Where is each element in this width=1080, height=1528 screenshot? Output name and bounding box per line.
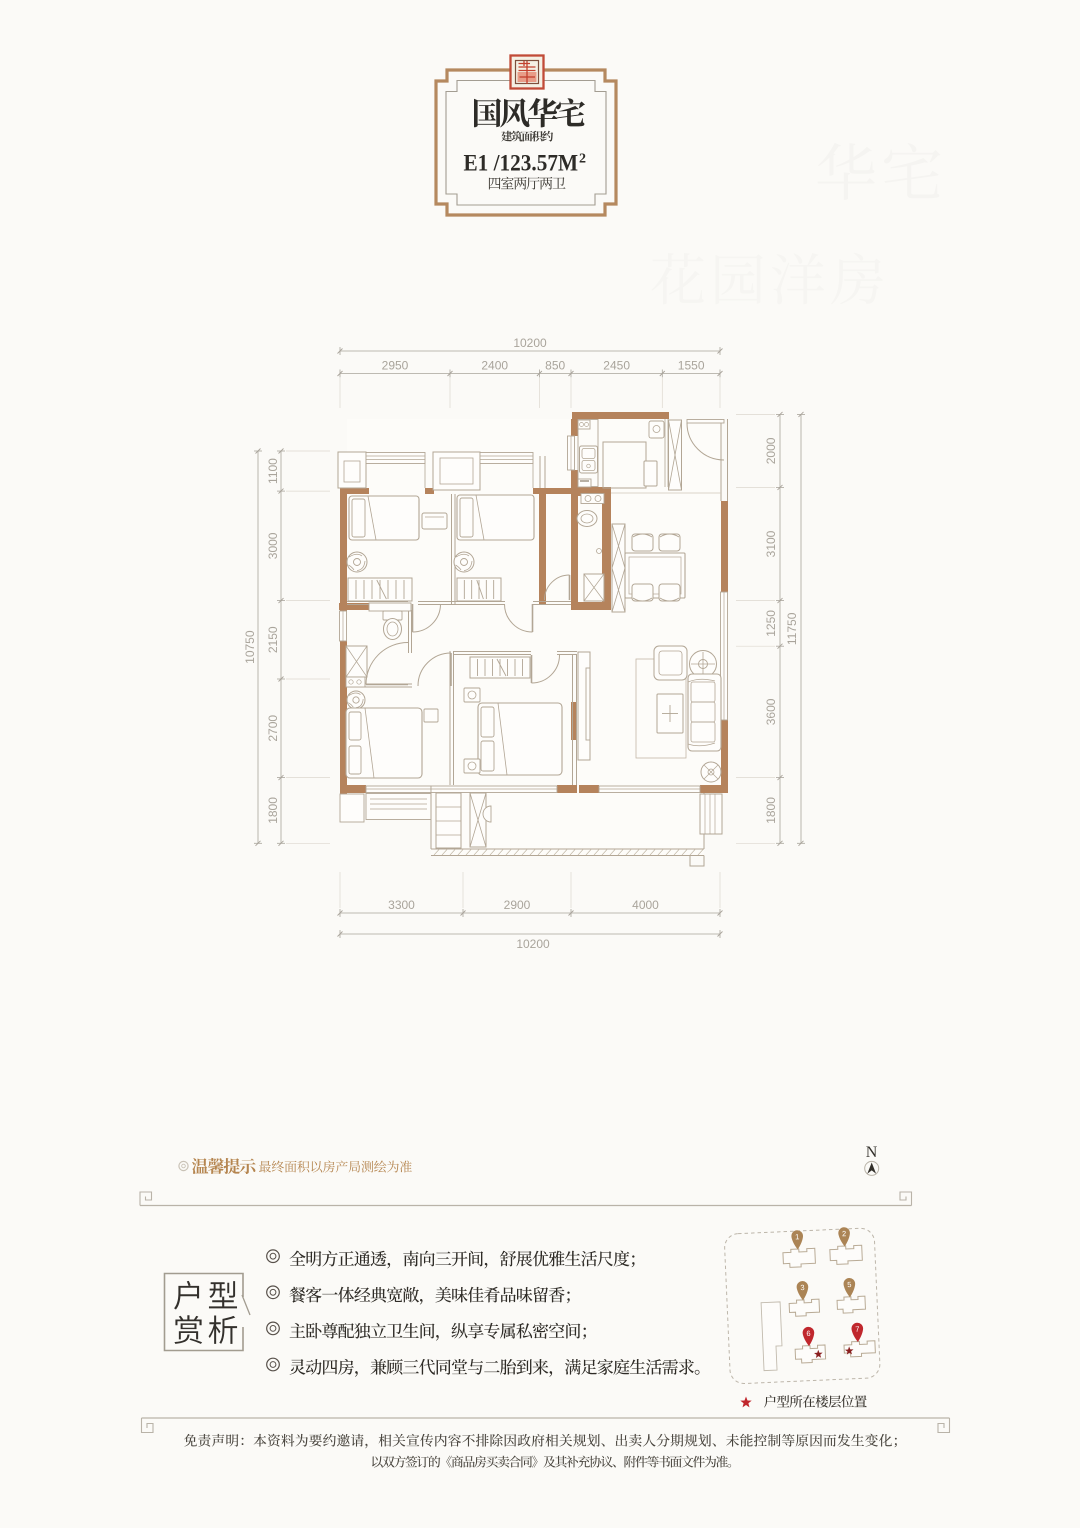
svg-text:3300: 3300 bbox=[388, 898, 415, 912]
svg-text:11750: 11750 bbox=[785, 612, 799, 645]
svg-text:10200: 10200 bbox=[516, 937, 550, 951]
svg-text:1800: 1800 bbox=[266, 797, 280, 824]
svg-text:5: 5 bbox=[847, 1280, 852, 1289]
svg-text:850: 850 bbox=[545, 359, 565, 373]
svg-text:6: 6 bbox=[806, 1329, 811, 1338]
svg-text:1800: 1800 bbox=[764, 797, 778, 824]
svg-text:3600: 3600 bbox=[764, 698, 778, 725]
svg-text:3000: 3000 bbox=[266, 532, 280, 559]
svg-text:4000: 4000 bbox=[632, 898, 659, 912]
svg-text:2000: 2000 bbox=[764, 437, 778, 464]
svg-text:2: 2 bbox=[579, 152, 586, 167]
svg-text:10750: 10750 bbox=[243, 630, 257, 664]
svg-text:N: N bbox=[866, 1144, 878, 1161]
svg-text:1550: 1550 bbox=[678, 359, 705, 373]
svg-text:10200: 10200 bbox=[513, 336, 547, 350]
svg-text:2950: 2950 bbox=[382, 359, 409, 373]
svg-text:2700: 2700 bbox=[266, 715, 280, 742]
svg-text:1250: 1250 bbox=[764, 610, 778, 637]
svg-text:2900: 2900 bbox=[504, 898, 531, 912]
svg-text:7: 7 bbox=[855, 1325, 860, 1334]
svg-text:2450: 2450 bbox=[603, 359, 630, 373]
svg-text:3: 3 bbox=[800, 1283, 805, 1292]
svg-text:1100: 1100 bbox=[266, 458, 280, 484]
svg-text:2400: 2400 bbox=[481, 359, 508, 373]
svg-text:E1 /123.57M: E1 /123.57M bbox=[464, 151, 579, 177]
svg-text:2150: 2150 bbox=[266, 626, 280, 653]
svg-text:2: 2 bbox=[842, 1229, 847, 1238]
svg-text:3100: 3100 bbox=[764, 530, 778, 557]
svg-text:1: 1 bbox=[795, 1232, 800, 1241]
